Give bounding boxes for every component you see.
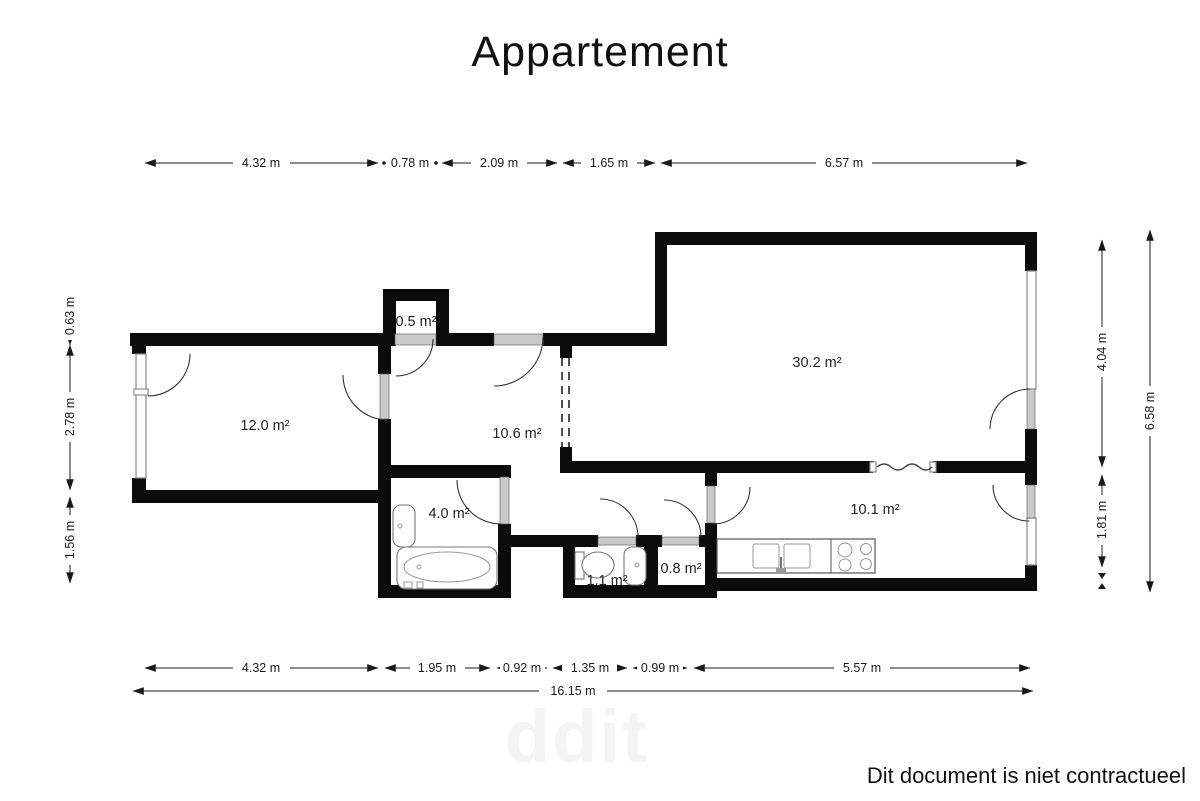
- door-kitchen-left: [713, 487, 750, 524]
- radiator-squiggle: [870, 462, 936, 472]
- dim-top-3: 2.09 m: [480, 156, 518, 170]
- dim-right-1: 4.04 m: [1095, 333, 1109, 371]
- floor-plan-drawing: 12.0 m² 0.5 m² 10.6 m² 30.2 m² 4.0 m² 1.…: [0, 0, 1200, 801]
- dim-top-2: 0.78 m: [391, 156, 429, 170]
- open-passage-dashed: [562, 358, 569, 447]
- walls: [130, 232, 1037, 598]
- room-label-storage: 0.8 m²: [660, 561, 701, 577]
- dim-bottom-5: 0.99 m: [641, 661, 679, 675]
- dim-left-3: 1.56 m: [63, 521, 77, 559]
- dim-top-1: 4.32 m: [242, 156, 280, 170]
- kitchen-counter-icon: [717, 539, 875, 573]
- door-living: [990, 389, 1030, 429]
- door-wc: [600, 499, 638, 537]
- room-label-kitchen: 10.1 m²: [850, 502, 899, 518]
- dim-right-2: 1.81 m: [1095, 501, 1109, 539]
- door-bedroom-window: [148, 354, 190, 396]
- dim-bottom-1: 4.32 m: [242, 661, 280, 675]
- dim-top-4: 1.65 m: [590, 156, 628, 170]
- room-label-hall: 10.6 m²: [492, 426, 541, 442]
- dim-bottom-6: 5.57 m: [843, 661, 881, 675]
- dim-right-total: 6.58 m: [1143, 392, 1157, 430]
- bathtub-icon: [397, 547, 497, 589]
- dim-top-5: 6.57 m: [825, 156, 863, 170]
- dim-bottom-3: 0.92 m: [503, 661, 541, 675]
- room-label-closet: 0.5 m²: [395, 314, 436, 330]
- dim-bottom-4: 1.35 m: [571, 661, 609, 675]
- room-label-bathroom: 4.0 m²: [428, 506, 469, 522]
- dim-left-1: 0.63 m: [63, 297, 77, 335]
- window-living: [1027, 271, 1036, 389]
- floor-plan-page: Appartement ddit: [0, 0, 1200, 801]
- room-label-living: 30.2 m²: [792, 355, 841, 371]
- washbasin-bathroom-icon: [393, 505, 415, 547]
- door-storage: [664, 500, 701, 537]
- room-label-bedroom: 12.0 m²: [240, 418, 289, 434]
- dim-bottom-2: 1.95 m: [418, 661, 456, 675]
- room-label-wc: 1.1 m²: [586, 573, 627, 589]
- disclaimer-text: Dit document is niet contractueel: [867, 763, 1186, 789]
- dim-left-2: 2.78 m: [63, 398, 77, 436]
- door-kitchen-right: [993, 485, 1029, 521]
- dim-total: 16.15 m: [550, 684, 595, 698]
- window-kitchen: [1027, 518, 1036, 565]
- door-sills: [380, 334, 1035, 545]
- window-bedroom: [136, 354, 146, 478]
